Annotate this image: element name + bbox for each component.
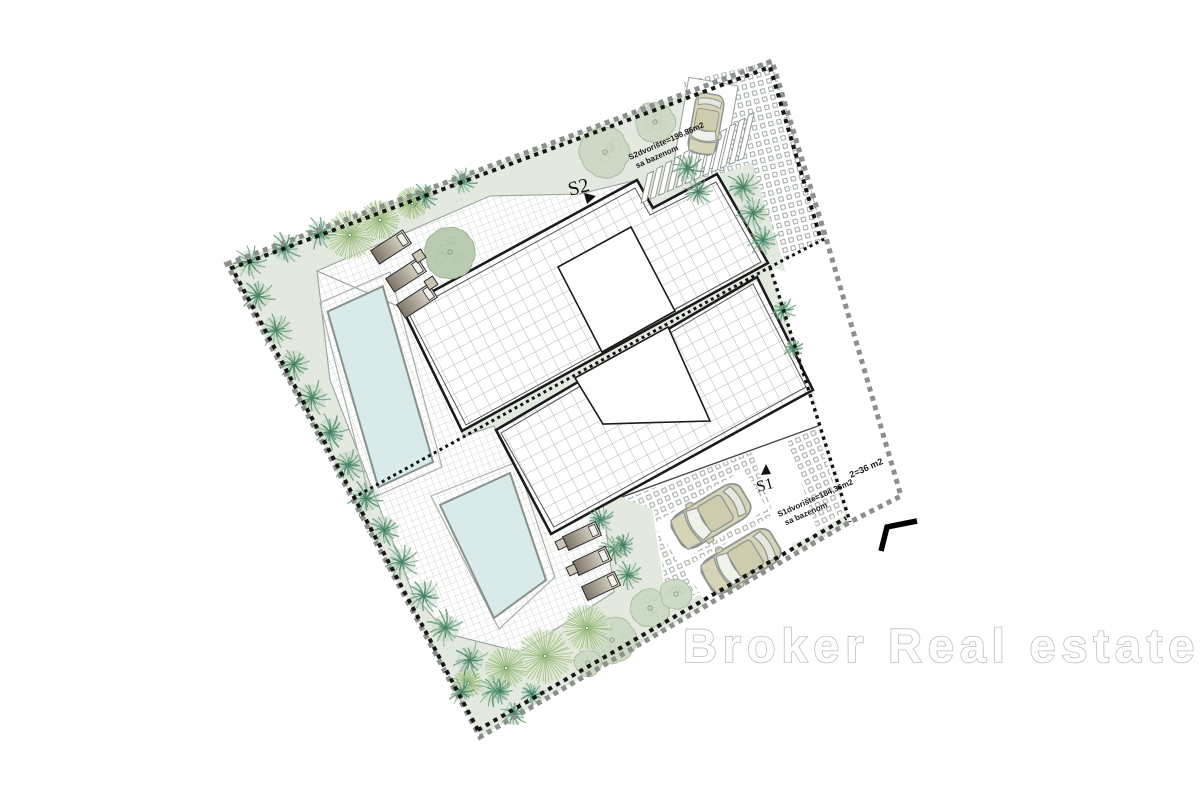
svg-text:Broker Real estate: Broker Real estate [683,619,1200,672]
